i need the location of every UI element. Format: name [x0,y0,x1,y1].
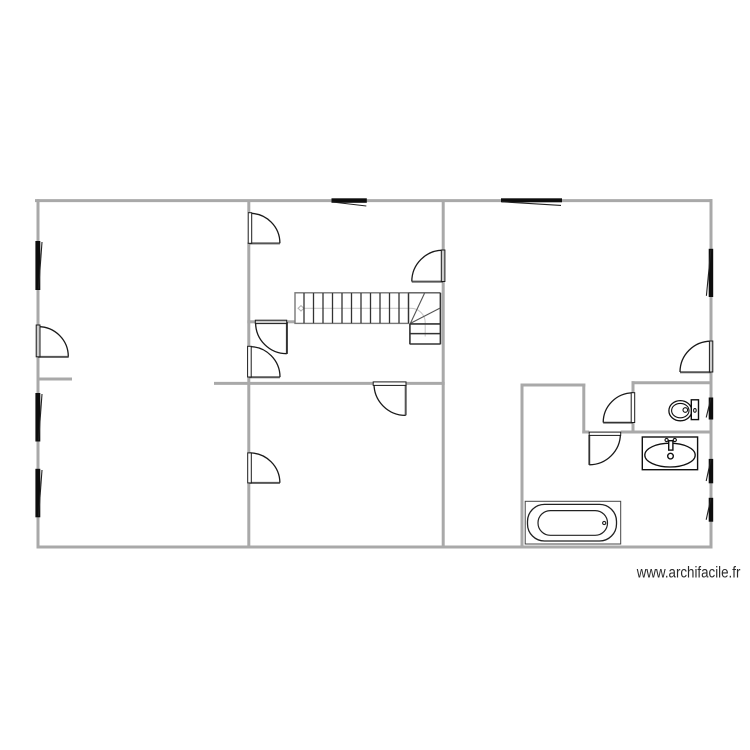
svg-text:www.archifacile.fr: www.archifacile.fr [636,564,741,581]
